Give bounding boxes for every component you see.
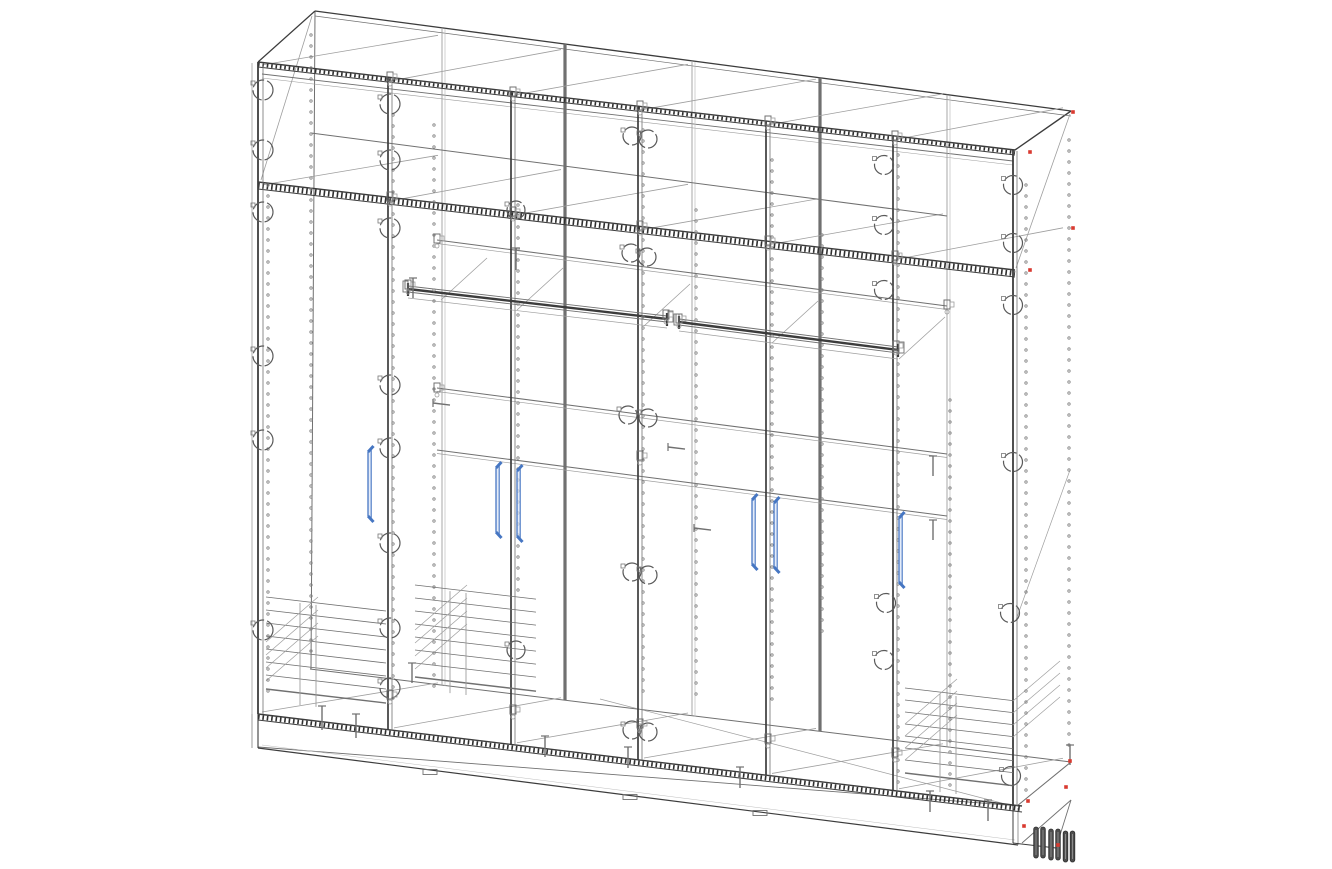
cam-lock: [638, 248, 656, 266]
pin-hole: [267, 217, 269, 219]
pin-hole: [897, 165, 899, 167]
pin-hole: [392, 356, 394, 358]
pin-hole: [310, 122, 312, 124]
pin-hole: [695, 594, 697, 596]
pin-hole: [1025, 613, 1027, 615]
pin-hole: [267, 690, 269, 692]
pin-hole: [1068, 183, 1070, 185]
pin-hole: [517, 435, 519, 437]
pin-hole: [771, 610, 773, 612]
handle-foot-top[interactable]: [496, 462, 502, 468]
pin-hole: [695, 319, 697, 321]
frame-line: [315, 11, 1071, 111]
pin-hole: [695, 429, 697, 431]
pin-hole: [1025, 668, 1027, 670]
pin-hole: [897, 495, 899, 497]
pin-hole: [821, 564, 823, 566]
pin-hole: [1068, 139, 1070, 141]
pin-hole: [310, 89, 312, 91]
pin-hole: [695, 275, 697, 277]
rail-tube: [679, 319, 898, 347]
pin-hole: [642, 624, 644, 626]
corner-marker: [1028, 150, 1032, 154]
pin-hole: [392, 312, 394, 314]
pin-hole: [642, 503, 644, 505]
pin-hole: [392, 554, 394, 556]
pin-hole: [695, 264, 697, 266]
cam-lock: [380, 150, 400, 170]
pin-hole: [310, 507, 312, 509]
handle-foot-top[interactable]: [774, 497, 780, 503]
pin-hole: [821, 432, 823, 434]
pin-hole: [771, 478, 773, 480]
pin-hole: [949, 762, 951, 764]
pin-hole: [897, 627, 899, 629]
pin-hole: [821, 377, 823, 379]
pin-hole: [642, 250, 644, 252]
pin-hole: [1025, 745, 1027, 747]
pin-hole: [310, 485, 312, 487]
pin-hole: [267, 437, 269, 439]
pin-hole: [310, 133, 312, 135]
pin-hole: [695, 605, 697, 607]
pin-hole: [1068, 392, 1070, 394]
bottom-panel-diagonal: [517, 713, 688, 743]
basket-side-wire: [1013, 673, 1060, 713]
pin-hole: [517, 545, 519, 547]
pin-hole: [267, 459, 269, 461]
cam-lock: [875, 651, 894, 670]
pin-hole: [433, 685, 435, 687]
pin-hole: [642, 195, 644, 197]
top-panel-diagonal: [394, 50, 561, 81]
pin-hole: [1025, 228, 1027, 230]
pin-hole: [433, 630, 435, 632]
handle-foot-bottom[interactable]: [496, 532, 502, 538]
basket-wire: [905, 736, 1013, 749]
pin-hole: [1068, 249, 1070, 251]
mezzanine-panel-diagonal: [517, 184, 688, 214]
pin-hole: [821, 267, 823, 269]
handle-foot-bottom[interactable]: [752, 564, 758, 570]
rail-tube: [408, 289, 667, 319]
basket-side-wire: [266, 597, 318, 642]
pin-hole: [821, 542, 823, 544]
pin-hole: [1025, 734, 1027, 736]
top-panel-diagonal: [517, 64, 688, 94]
pin-hole: [1025, 272, 1027, 274]
pin-hole: [897, 374, 899, 376]
pin-hole: [310, 111, 312, 113]
pin-hole: [897, 693, 899, 695]
pin-hole: [1068, 359, 1070, 361]
pin-hole: [433, 432, 435, 434]
pin-hole: [1068, 568, 1070, 570]
pin-hole: [392, 653, 394, 655]
pin-hole: [433, 553, 435, 555]
pin-hole: [310, 276, 312, 278]
pin-hole: [1068, 623, 1070, 625]
pin-hole: [310, 210, 312, 212]
pin-hole: [771, 423, 773, 425]
adjustable-feet[interactable]: [1034, 827, 1075, 862]
connector-block: [643, 453, 647, 458]
handle-foot-bottom[interactable]: [368, 516, 374, 522]
pin-hole: [392, 609, 394, 611]
connector-block: [669, 312, 673, 317]
pin-hole: [771, 247, 773, 249]
pin-hole: [267, 316, 269, 318]
pin-hole: [1068, 425, 1070, 427]
pin-hole: [642, 525, 644, 527]
pin-hole: [310, 298, 312, 300]
pin-hole: [897, 198, 899, 200]
pin-hole: [695, 693, 697, 695]
pin-hole: [433, 641, 435, 643]
pin-hole: [517, 259, 519, 261]
pin-hole: [695, 638, 697, 640]
pin-hole: [267, 481, 269, 483]
pin-hole: [310, 397, 312, 399]
pin-hole: [821, 454, 823, 456]
pin-hole: [267, 206, 269, 208]
pin-hole: [1025, 481, 1027, 483]
pin-hole: [1025, 514, 1027, 516]
connector-block: [434, 383, 440, 392]
pin-hole: [1068, 172, 1070, 174]
pin-hole: [517, 369, 519, 371]
basket-side-wire: [415, 585, 467, 630]
pin-hole: [433, 212, 435, 214]
pin-hole: [821, 487, 823, 489]
connector-block: [516, 707, 520, 712]
pin-hole: [1025, 558, 1027, 560]
pin-hole: [821, 278, 823, 280]
pin-hole: [433, 124, 435, 126]
handle-foot-bottom[interactable]: [774, 567, 780, 573]
pin-hole: [821, 465, 823, 467]
pin-hole: [1025, 382, 1027, 384]
pin-hole: [642, 294, 644, 296]
pin-hole: [267, 338, 269, 340]
pin-hole: [433, 179, 435, 181]
pin-hole: [392, 642, 394, 644]
pin-hole: [771, 665, 773, 667]
rail-tube: [408, 286, 667, 316]
pin-hole: [1068, 227, 1070, 229]
pin-hole: [642, 547, 644, 549]
pin-hole: [897, 385, 899, 387]
pin-hole: [897, 286, 899, 288]
pin-hole: [695, 297, 697, 299]
pin-hole: [821, 531, 823, 533]
pin-hole: [642, 140, 644, 142]
pin-hole: [433, 487, 435, 489]
pin-hole: [392, 345, 394, 347]
pin-hole: [1068, 381, 1070, 383]
handle-foot-bottom[interactable]: [517, 536, 523, 542]
pin-hole: [1068, 579, 1070, 581]
pin-hole: [1068, 645, 1070, 647]
pin-hole: [1025, 470, 1027, 472]
pin-hole: [1025, 778, 1027, 780]
pin-hole: [771, 632, 773, 634]
pin-hole: [310, 342, 312, 344]
pin-hole: [821, 586, 823, 588]
pin-hole: [1068, 667, 1070, 669]
pin-hole: [821, 619, 823, 621]
bottom-panel-diagonal: [772, 744, 943, 774]
pin-hole: [695, 550, 697, 552]
pin-hole: [392, 422, 394, 424]
pin-hole: [642, 349, 644, 351]
handle-foot-top[interactable]: [752, 494, 758, 500]
pin-hole: [897, 220, 899, 222]
pin-hole: [1068, 502, 1070, 504]
basket-wire: [415, 611, 536, 625]
pin-hole: [897, 418, 899, 420]
pin-hole: [695, 572, 697, 574]
corner-marker: [1064, 785, 1068, 789]
pin-hole: [642, 327, 644, 329]
pin-hole: [1068, 304, 1070, 306]
pin-hole: [695, 231, 697, 233]
pin-hole: [310, 441, 312, 443]
pin-hole: [1068, 403, 1070, 405]
pin-hole: [897, 297, 899, 299]
door-handles-selected[interactable]: [368, 446, 905, 588]
pin-hole: [267, 327, 269, 329]
pin-hole: [821, 245, 823, 247]
pin-hole: [771, 698, 773, 700]
pin-hole: [392, 411, 394, 413]
pin-hole: [897, 440, 899, 442]
pin-hole: [310, 353, 312, 355]
cam-lock-tab: [621, 564, 625, 568]
pin-hole: [897, 660, 899, 662]
pin-hole: [267, 393, 269, 395]
frame-line: [311, 11, 315, 669]
basket-wire: [266, 649, 386, 663]
pin-hole: [310, 386, 312, 388]
pin-hole: [771, 522, 773, 524]
pin-hole: [310, 34, 312, 36]
handle-foot-bottom[interactable]: [899, 582, 905, 588]
pin-hole: [1068, 513, 1070, 515]
top-panel-diagonal: [772, 94, 943, 124]
pin-hole: [267, 371, 269, 373]
pin-hole: [821, 597, 823, 599]
pin-hole: [771, 357, 773, 359]
shelf-lines: [311, 133, 947, 520]
pin-hole: [821, 476, 823, 478]
pin-hole: [642, 371, 644, 373]
pin-hole: [1025, 393, 1027, 395]
pin-hole: [821, 256, 823, 258]
pin-hole: [392, 565, 394, 567]
pin-hole: [433, 498, 435, 500]
pin-hole: [1068, 458, 1070, 460]
pin-hole: [433, 663, 435, 665]
handle-foot-top[interactable]: [517, 465, 523, 471]
pin-hole: [1068, 282, 1070, 284]
pin-hole: [433, 476, 435, 478]
pin-hole: [267, 613, 269, 615]
cam-lock: [875, 216, 894, 235]
cam-lock-tab: [505, 642, 509, 646]
pin-hole: [695, 352, 697, 354]
pin-hole: [642, 151, 644, 153]
pin-hole: [642, 261, 644, 263]
connector-fittings: [387, 72, 954, 762]
pin-hole: [433, 520, 435, 522]
pin-hole: [433, 377, 435, 379]
pin-hole: [642, 536, 644, 538]
pin-hole: [897, 638, 899, 640]
cam-lock: [619, 406, 637, 424]
pin-hole: [1068, 700, 1070, 702]
pin-hole: [267, 492, 269, 494]
pin-hole: [1068, 447, 1070, 449]
pin-hole: [392, 466, 394, 468]
pin-hole: [392, 477, 394, 479]
pin-hole: [1068, 370, 1070, 372]
pin-hole: [267, 525, 269, 527]
pin-hole: [1025, 415, 1027, 417]
pin-hole: [267, 404, 269, 406]
pin-hole: [1068, 216, 1070, 218]
pin-hole: [267, 426, 269, 428]
pin-hole: [267, 360, 269, 362]
pin-hole: [433, 333, 435, 335]
pin-hole: [642, 382, 644, 384]
basket-wire: [266, 636, 386, 650]
pin-hole: [642, 668, 644, 670]
pin-hole: [517, 556, 519, 558]
pin-hole: [642, 162, 644, 164]
pin-hole: [897, 484, 899, 486]
pin-hole: [1068, 194, 1070, 196]
pin-hole: [897, 330, 899, 332]
pin-hole: [642, 657, 644, 659]
pin-hole: [392, 257, 394, 259]
pin-hole: [1068, 161, 1070, 163]
pin-hole: [771, 654, 773, 656]
pin-hole: [433, 542, 435, 544]
pin-hole: [392, 136, 394, 138]
pin-hole: [267, 657, 269, 659]
pin-hole: [433, 509, 435, 511]
pin-hole: [517, 424, 519, 426]
pin-hole: [642, 690, 644, 692]
pin-hole: [771, 346, 773, 348]
pin-hole: [1025, 657, 1027, 659]
pin-hole: [771, 214, 773, 216]
handle-foot-top[interactable]: [899, 512, 905, 518]
pin-hole: [310, 45, 312, 47]
pin-hole: [310, 243, 312, 245]
pin-hole: [897, 319, 899, 321]
pin-hole: [310, 452, 312, 454]
pin-hole: [517, 204, 519, 206]
mezzanine-panel-diagonal: [644, 199, 816, 229]
pin-hole: [1025, 723, 1027, 725]
pin-hole: [1068, 656, 1070, 658]
pin-hole: [267, 470, 269, 472]
frame-line: [1016, 114, 1070, 268]
pin-hole: [392, 323, 394, 325]
pin-hole: [517, 215, 519, 217]
pin-hole: [392, 400, 394, 402]
pin-hole: [821, 509, 823, 511]
pin-hole: [267, 569, 269, 571]
corner-marker: [1071, 226, 1075, 230]
pin-hole: [821, 355, 823, 357]
pin-hole: [1068, 480, 1070, 482]
pin-hole: [433, 619, 435, 621]
pin-hole: [897, 242, 899, 244]
pin-hole: [1068, 469, 1070, 471]
pin-hole: [897, 704, 899, 706]
basket-side-wire: [1013, 685, 1060, 725]
pin-hole: [821, 399, 823, 401]
bottom-panel-diagonal: [394, 698, 561, 728]
pin-hole: [267, 536, 269, 538]
basket-wire: [266, 675, 386, 689]
pin-hole: [1068, 711, 1070, 713]
pin-hole: [1025, 305, 1027, 307]
pin-hole: [771, 302, 773, 304]
pin-hole: [267, 580, 269, 582]
pin-hole: [695, 396, 697, 398]
pin-hole: [642, 558, 644, 560]
pin-hole: [1025, 580, 1027, 582]
pin-hole: [897, 473, 899, 475]
handle-foot-top[interactable]: [368, 446, 374, 452]
pin-hole: [1025, 635, 1027, 637]
pin-hole: [771, 676, 773, 678]
pin-hole: [695, 660, 697, 662]
pin-hole: [695, 209, 697, 211]
pin-hole: [433, 135, 435, 137]
pin-hole: [1068, 436, 1070, 438]
pin-hole: [310, 463, 312, 465]
corner-marker: [1071, 110, 1075, 114]
basket-side-wire: [415, 598, 467, 643]
pin-hole: [310, 166, 312, 168]
pin-hole: [310, 540, 312, 542]
pin-hole: [897, 451, 899, 453]
pin-hole: [771, 687, 773, 689]
pin-hole: [310, 78, 312, 80]
pin-hole: [433, 410, 435, 412]
pin-hole: [897, 231, 899, 233]
pin-hole: [771, 588, 773, 590]
frame-line: [1015, 111, 1071, 150]
pin-hole: [517, 578, 519, 580]
pin-hole: [1025, 767, 1027, 769]
pin-hole: [310, 331, 312, 333]
pin-hole: [771, 390, 773, 392]
pin-hole: [821, 553, 823, 555]
pin-hole: [771, 324, 773, 326]
pin-hole: [1068, 337, 1070, 339]
pin-hole: [1025, 679, 1027, 681]
pin-hole: [392, 587, 394, 589]
pin-hole: [433, 289, 435, 291]
pin-hole: [267, 591, 269, 593]
pin-hole: [771, 500, 773, 502]
